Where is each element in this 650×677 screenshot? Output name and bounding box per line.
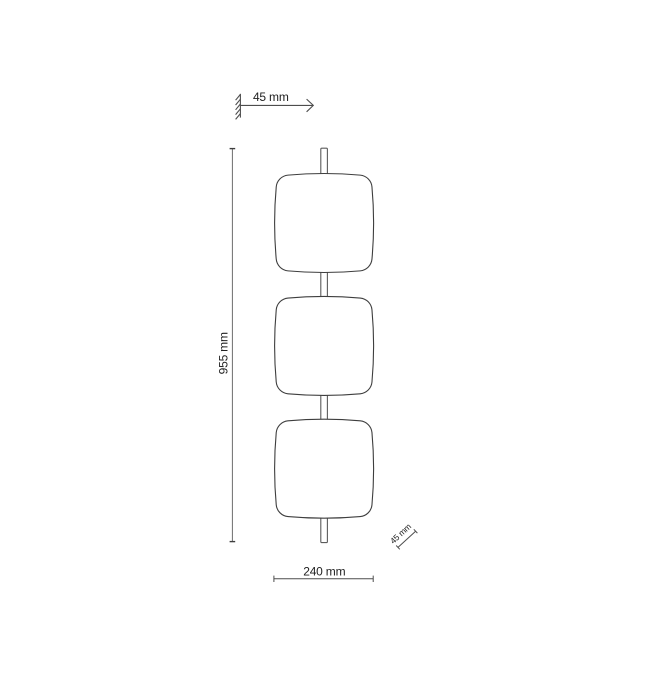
svg-text:45 mm: 45 mm (253, 90, 289, 104)
svg-text:45 mm: 45 mm (388, 521, 413, 545)
svg-text:955 mm: 955 mm (217, 332, 231, 374)
svg-text:240 mm: 240 mm (303, 565, 345, 579)
